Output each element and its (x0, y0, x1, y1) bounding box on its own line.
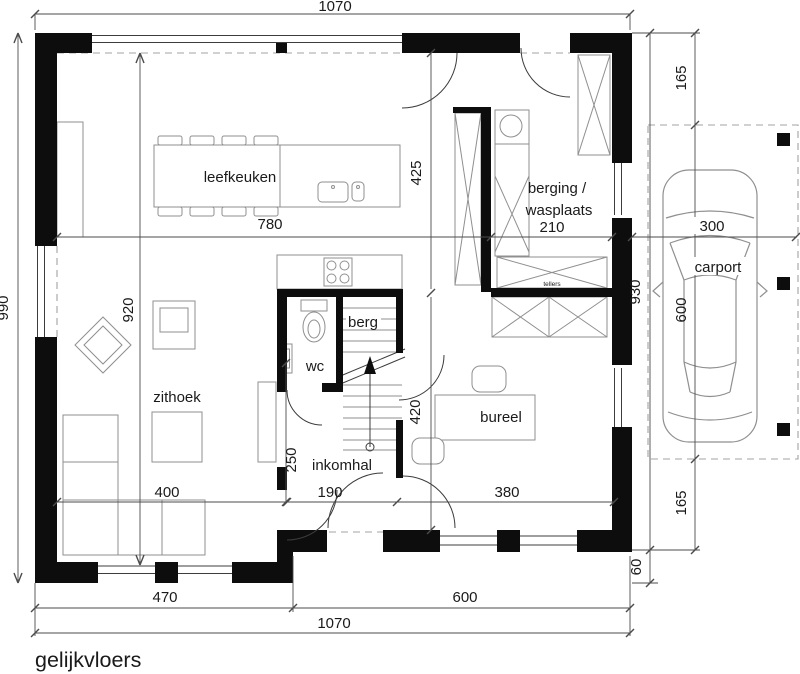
room-label-inkomhal: inkomhal (312, 457, 372, 474)
desk-chair-bottom (412, 438, 444, 464)
carport-outline (648, 125, 798, 459)
sideboard-hall (258, 382, 276, 462)
dim-kitchen-width: 780 (257, 216, 282, 233)
dim-right-offset-bottom: 165 (673, 490, 690, 515)
carport-post (777, 277, 790, 290)
kitchen-counter (277, 255, 402, 289)
floor-plan-page: 1070 990 leefkeuken 780 425 berging / wa… (0, 0, 800, 674)
dim-bottom-left: 470 (152, 589, 177, 606)
door-bureel-hall (399, 355, 444, 400)
dim-living-depth: 920 (120, 297, 137, 322)
dim-house-depth: 930 (627, 279, 644, 304)
carport-post (777, 423, 790, 436)
sink-small (352, 182, 364, 201)
floor-plan-svg: 1070 990 leefkeuken 780 425 berging / wa… (0, 0, 800, 674)
dim-inkomhal-depth: 250 (283, 447, 300, 472)
door-berging-exterior (521, 48, 570, 97)
dim-bureel-width: 380 (494, 484, 519, 501)
dim-top-total: 1070 (318, 0, 351, 15)
dim-zithoek-width: 400 (154, 484, 179, 501)
bar-stool (254, 136, 278, 145)
living-furniture (63, 301, 276, 555)
door-kitchen-berging (402, 53, 457, 108)
bar-stool (158, 207, 182, 216)
cabinet-column (495, 144, 529, 256)
dim-inkomhal-width: 190 (317, 484, 342, 501)
bar-stool (222, 136, 246, 145)
dim-right-offset-top: 165 (673, 65, 690, 90)
bar-stool (222, 207, 246, 216)
dim-carport-length: 600 (673, 297, 690, 322)
room-label-bureel: bureel (480, 409, 522, 426)
room-label-wc: wc (305, 358, 325, 375)
dim-bottom-total: 1070 (317, 615, 350, 632)
bar-stool (190, 136, 214, 145)
desk-chair-top (472, 366, 506, 392)
dim-carport-width: 300 (699, 218, 724, 235)
bar-stool (254, 207, 278, 216)
bar-stool (158, 136, 182, 145)
room-label-berg: berg (348, 314, 378, 331)
label-tellers: tellers (543, 281, 561, 288)
car-mirror-left (653, 282, 663, 297)
dim-berging-width: 210 (539, 219, 564, 236)
coffee-table (152, 412, 202, 462)
room-label-berging-2: wasplaats (525, 202, 593, 219)
dim-bureel-depth: 420 (407, 399, 424, 424)
dim-wall-ledge: 60 (628, 559, 645, 576)
dim-left-total: 990 (0, 295, 12, 320)
room-label-carport: carport (695, 259, 743, 276)
door-wc (287, 390, 322, 425)
kitchen-furniture (57, 122, 402, 289)
car-mirror-right (757, 282, 767, 297)
drawing-title: gelijkvloers (35, 648, 141, 672)
toilet-tank (301, 300, 327, 311)
sideboard-left (57, 122, 83, 237)
car (653, 170, 767, 442)
sofa-horizontal (63, 500, 205, 555)
bar-stool (190, 207, 214, 216)
carport-post (777, 133, 790, 146)
dim-bottom-right: 600 (452, 589, 477, 606)
room-label-berging-1: berging / (528, 180, 587, 197)
room-label-leefkeuken: leefkeuken (204, 169, 277, 186)
dim-kitchen-depth: 425 (408, 160, 425, 185)
room-label-zithoek: zithoek (153, 389, 201, 406)
